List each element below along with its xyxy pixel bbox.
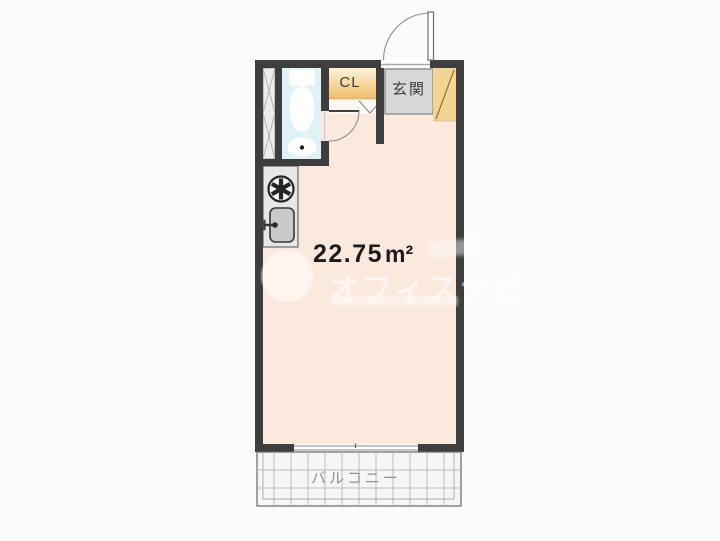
sliding-window-icon: [294, 444, 418, 453]
entrance-door-icon: [381, 12, 434, 68]
stove-burner-icon: [269, 177, 294, 202]
entrance-label: 玄関: [392, 81, 426, 98]
kitchen-counter: [263, 166, 299, 247]
watermark-subtext-blur: [332, 296, 458, 306]
shoe-cabinet-icon: [433, 68, 456, 121]
balcony-label: バルコニー: [311, 470, 401, 487]
watermark-logo-icon: [261, 250, 313, 302]
closet-label: CL: [339, 74, 360, 91]
pipe-shaft-icon: [263, 68, 275, 159]
floorplan-canvas: バルコニー CL 玄関 22.75 m² オフィスナビ: [0, 0, 720, 541]
balcony-area: バルコニー: [257, 452, 461, 506]
